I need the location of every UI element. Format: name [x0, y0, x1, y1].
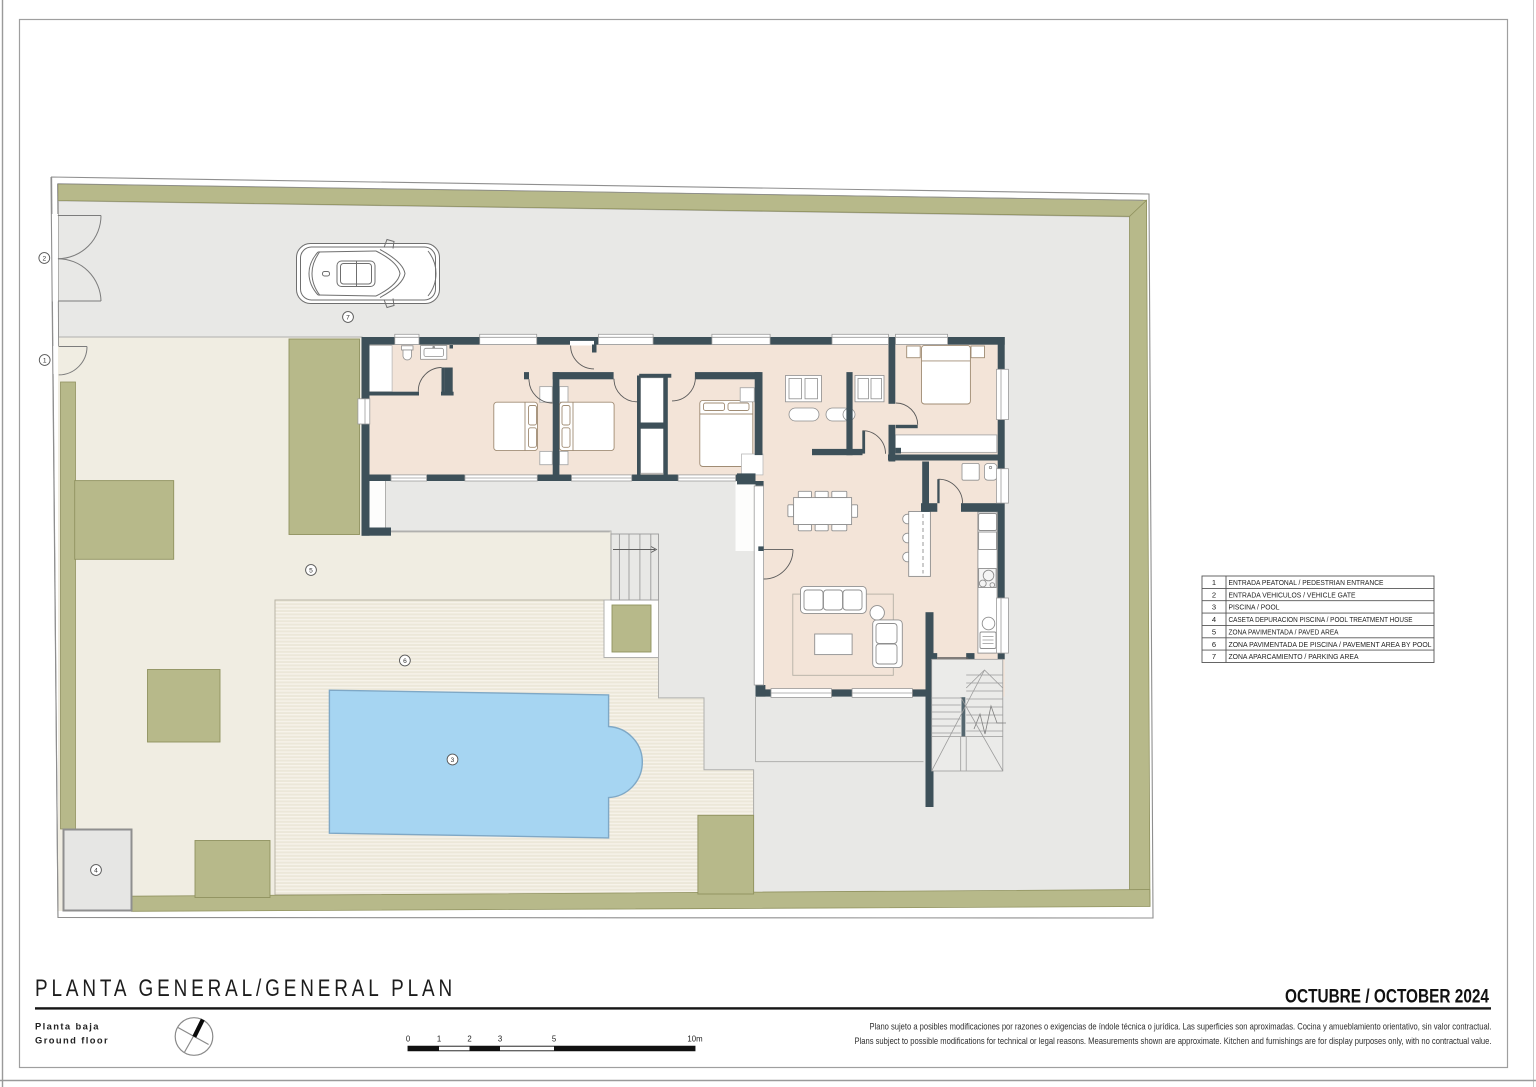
svg-text:5: 5: [552, 1035, 557, 1044]
svg-text:5: 5: [1212, 627, 1216, 636]
svg-text:1: 1: [1212, 578, 1216, 587]
svg-text:1: 1: [43, 357, 47, 364]
svg-text:4: 4: [94, 867, 98, 874]
svg-text:6: 6: [1212, 640, 1216, 649]
svg-text:CASETA DEPURACION PISCINA / PO: CASETA DEPURACION PISCINA / POOL TREATME…: [1229, 615, 1413, 624]
svg-text:ENTRADA PEATONAL / PEDESTRIAN: ENTRADA PEATONAL / PEDESTRIAN ENTRANCE: [1229, 578, 1384, 587]
svg-text:7: 7: [1212, 652, 1216, 661]
svg-text:PLANTA GENERAL/GENERAL PLAN: PLANTA GENERAL/GENERAL PLAN: [35, 975, 456, 1002]
svg-text:2: 2: [42, 255, 46, 262]
svg-text:Planta baja: Planta baja: [35, 1021, 100, 1032]
svg-text:7: 7: [346, 314, 350, 321]
svg-text:ENTRADA VEHICULOS / VEHICLE GA: ENTRADA VEHICULOS / VEHICLE GATE: [1229, 590, 1356, 599]
svg-text:3: 3: [1212, 603, 1216, 612]
svg-text:Plano sujeto a posibles modifi: Plano sujeto a posibles modificaciones p…: [870, 1022, 1492, 1032]
svg-text:ZONA PAVIMENTADA / PAVED AREA: ZONA PAVIMENTADA / PAVED AREA: [1229, 627, 1340, 636]
svg-text:Ground floor: Ground floor: [35, 1035, 109, 1046]
svg-text:3: 3: [451, 757, 455, 764]
svg-text:ZONA PAVIMENTADA DE PISCINA /: ZONA PAVIMENTADA DE PISCINA / PAVEMENT A…: [1229, 640, 1432, 649]
svg-text:OCTUBRE / OCTOBER 2024: OCTUBRE / OCTOBER 2024: [1285, 986, 1489, 1008]
svg-text:5: 5: [309, 567, 313, 574]
svg-text:1: 1: [437, 1035, 441, 1044]
svg-text:2: 2: [467, 1035, 471, 1044]
svg-text:PISCINA / POOL: PISCINA / POOL: [1229, 603, 1280, 612]
svg-text:3: 3: [498, 1035, 502, 1044]
svg-text:0: 0: [406, 1035, 411, 1044]
svg-text:10m: 10m: [687, 1035, 702, 1044]
svg-text:4: 4: [1212, 615, 1216, 624]
svg-text:Plans subject to possible modi: Plans subject to possible modifications …: [855, 1036, 1492, 1046]
svg-text:6: 6: [403, 658, 407, 665]
svg-text:ZONA APARCAMIENTO / PARKING AR: ZONA APARCAMIENTO / PARKING AREA: [1229, 652, 1360, 661]
svg-text:2: 2: [1212, 590, 1216, 599]
